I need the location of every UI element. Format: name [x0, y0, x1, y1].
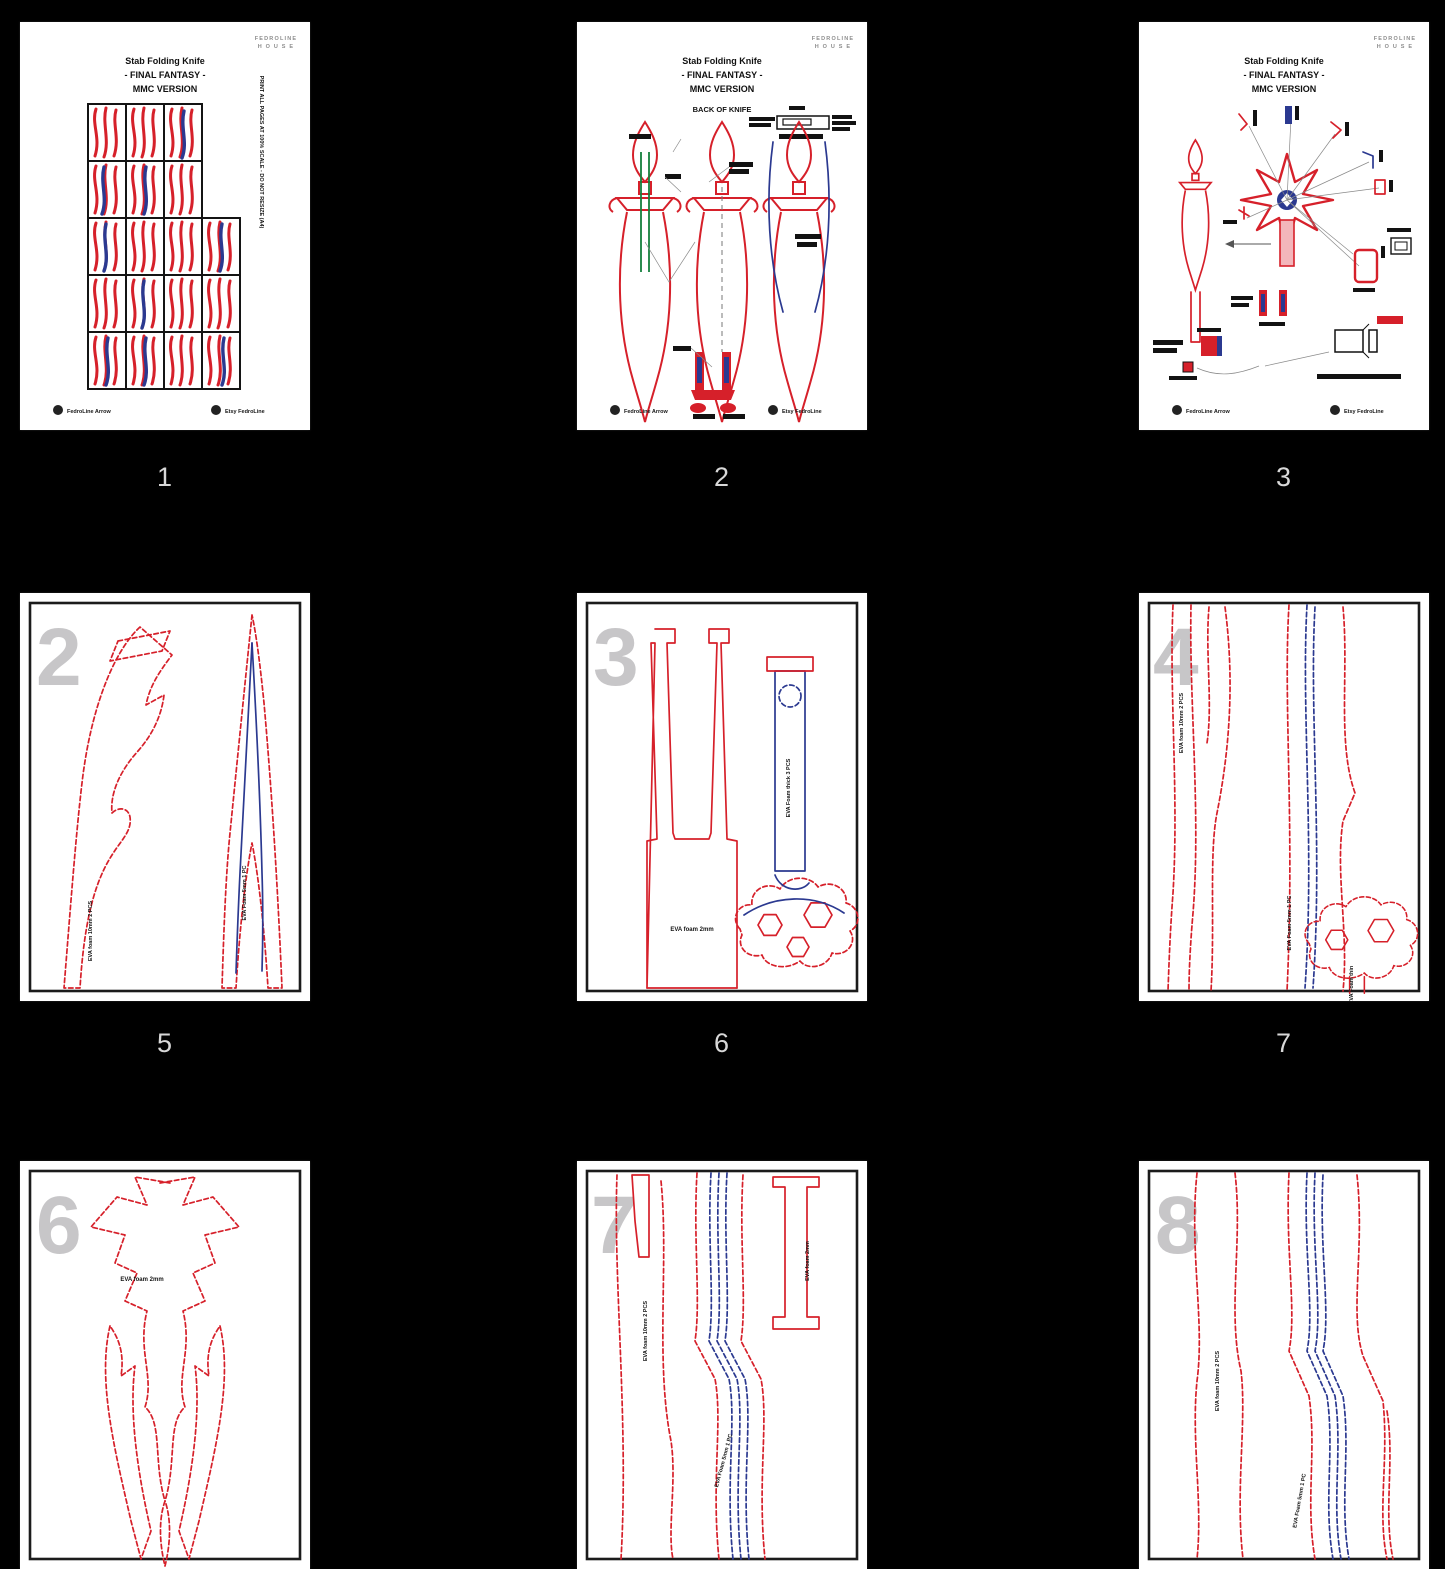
footer-credits: FedroLine Arrow Etsy FedroLine [53, 405, 265, 415]
sheet-2-graphic: 2 EVA foam 10mm 2 PCS EVA Foam 5mm 1 PC [20, 593, 310, 1001]
svg-text:Etsy FedroLine: Etsy FedroLine [782, 409, 822, 415]
footer-credits: FedroLine Arrow Etsy FedroLine [610, 405, 822, 415]
material-label: EVA Foam thin [1349, 965, 1355, 1001]
pattern-piece-handle: EVA foam 2mm [647, 629, 737, 988]
pattern-piece-guard [1305, 897, 1418, 993]
svg-text:Stab Folding Knife: Stab Folding Knife [125, 56, 205, 66]
pattern-piece-ornament: EVA foam 2mm [91, 1177, 239, 1566]
svg-text:EVA foam 2mm: EVA foam 2mm [120, 1277, 163, 1283]
brand-logo-line2: H O U S E [258, 44, 294, 50]
page-number-7[interactable]: 7 [1139, 1028, 1429, 1059]
pattern-tile-grid [88, 104, 240, 389]
svg-text:EVA Foam 5mm 1 PC: EVA Foam 5mm 1 PC [1287, 895, 1293, 950]
page-thumbnail-5[interactable]: 2 EVA foam 10mm 2 PCS EVA Foam 5mm 1 PC [20, 593, 310, 1001]
svg-text:MMC VERSION: MMC VERSION [690, 84, 755, 94]
svg-text:MMC VERSION: MMC VERSION [133, 84, 198, 94]
pattern-piece-blade: EVA Foam 5mm 1 PC [222, 615, 282, 988]
knife-view-left [610, 122, 681, 422]
clamp-assembly [690, 352, 736, 413]
assembled-knife [1180, 140, 1211, 342]
brand-logo-line2: H O U S E [815, 44, 851, 50]
page-3-graphic: FEDROLINE H O U S E Stab Folding Knife -… [1139, 22, 1429, 430]
pattern-blade-bundle: EVA Foam 5mm 1 PC [695, 1173, 765, 1559]
pattern-piece-core: EVA Foam thick 3 PCS [767, 657, 813, 871]
sheet-6-graphic: 6 EVA foam 2mm [20, 1161, 310, 1569]
exploded-guard [1241, 154, 1333, 266]
pattern-piece-guard [736, 878, 858, 966]
svg-text:EVA foam 10mm 2 PCS: EVA foam 10mm 2 PCS [643, 1301, 649, 1362]
knife-view-right [764, 122, 835, 422]
page-number-2[interactable]: 2 [577, 462, 867, 493]
page-thumbnail-7[interactable]: 4 EVA foam 10mm 2 PCS EVA Foam 5mm 1 PC … [1139, 593, 1429, 1001]
page-number-5[interactable]: 5 [20, 1028, 310, 1059]
sheet-number: 8 [1155, 1180, 1201, 1271]
svg-text:MMC VERSION: MMC VERSION [1252, 84, 1317, 94]
footer-left-text: FedroLine Arrow [67, 409, 112, 415]
brand-logo-line1: FEDROLINE [812, 36, 855, 42]
svg-text:Stab Folding Knife: Stab Folding Knife [682, 56, 762, 66]
page-title: Stab Folding Knife - FINAL FANTASY - MMC… [125, 56, 206, 94]
svg-text:FedroLine Arrow: FedroLine Arrow [624, 409, 669, 415]
sheet-number: 2 [36, 612, 82, 703]
pattern-ibeam: EVA foam 2mm [773, 1177, 819, 1329]
page-number-3[interactable]: 3 [1139, 462, 1429, 493]
svg-text:EVA Foam thick 3 PCS: EVA Foam thick 3 PCS [786, 758, 792, 817]
page-number-6[interactable]: 6 [577, 1028, 867, 1059]
page-thumbnail-10[interactable]: 7 EVA foam 10mm 2 PCS EVA Foam 5mm 1 PC … [577, 1161, 867, 1569]
brand-logo-line1: FEDROLINE [255, 36, 298, 42]
svg-text:EVA Foam 5mm 1 PC: EVA Foam 5mm 1 PC [1292, 1473, 1307, 1528]
svg-text:- FINAL FANTASY -: - FINAL FANTASY - [682, 70, 763, 80]
page-thumbnail-6[interactable]: 3 EVA foam 2mm EVA Foam thick 3 PCS [577, 593, 867, 1001]
thickness-legend [749, 106, 856, 139]
page-subtitle: BACK OF KNIFE [693, 105, 752, 114]
sheet-number: 7 [591, 1180, 637, 1271]
svg-text:Stab Folding Knife: Stab Folding Knife [1244, 56, 1324, 66]
brand-logo-line1: FEDROLINE [1374, 36, 1417, 42]
svg-text:- FINAL FANTASY -: - FINAL FANTASY - [125, 70, 206, 80]
sheet-number: 6 [36, 1180, 82, 1271]
svg-text:EVA foam 2mm: EVA foam 2mm [670, 927, 713, 933]
page-title: Stab Folding Knife - FINAL FANTASY - MMC… [1244, 56, 1325, 94]
page-number-1[interactable]: 1 [20, 462, 310, 493]
hardware-detail-left [1153, 328, 1259, 380]
page-2-graphic: FEDROLINE H O U S E Stab Folding Knife -… [577, 22, 867, 430]
pattern-blade-bundle: EVA Foam 5mm 1 PC [1288, 1173, 1393, 1559]
brand-logo-line2: H O U S E [1377, 44, 1413, 50]
page-title: Stab Folding Knife - FINAL FANTASY - MMC… [682, 56, 763, 114]
sheet-8-graphic: 8 EVA foam 10mm 2 PCS EVA Foam 5mm 1 PC [1139, 1161, 1429, 1569]
svg-text:EVA foam 2mm: EVA foam 2mm [805, 1241, 811, 1281]
hardware-detail-right [1265, 316, 1403, 379]
svg-text:EVA Foam 5mm 1 PC: EVA Foam 5mm 1 PC [242, 865, 248, 920]
svg-text:Etsy FedroLine: Etsy FedroLine [1344, 409, 1384, 415]
print-instruction-note: PRINT ALL PAGES AT 100% SCALE - DO NOT R… [258, 76, 264, 229]
page-thumbnail-9[interactable]: 6 EVA foam 2mm [20, 1161, 310, 1569]
svg-text:- FINAL FANTASY -: - FINAL FANTASY - [1244, 70, 1325, 80]
sheet-4-graphic: 4 EVA foam 10mm 2 PCS EVA Foam 5mm 1 PC … [1139, 593, 1429, 1001]
page-1-graphic: FEDROLINE H O U S E Stab Folding Knife -… [20, 22, 310, 430]
pattern-strip-left: EVA foam 10mm 2 PCS [1195, 1173, 1243, 1559]
explode-arrow [1225, 240, 1271, 248]
sheet-7-graphic: 7 EVA foam 10mm 2 PCS EVA Foam 5mm 1 PC … [577, 1161, 867, 1569]
svg-text:EVA foam 10mm 2 PCS: EVA foam 10mm 2 PCS [88, 901, 94, 962]
svg-text:EVA foam 10mm 2 PCS: EVA foam 10mm 2 PCS [1179, 693, 1185, 754]
guard-connector [775, 875, 809, 889]
page-thumbnail-3[interactable]: FEDROLINE H O U S E Stab Folding Knife -… [1139, 22, 1429, 430]
svg-text:FedroLine Arrow: FedroLine Arrow [1186, 409, 1231, 415]
pivot-parts [1231, 290, 1287, 326]
footer-credits: FedroLine Arrow Etsy FedroLine [1172, 405, 1384, 415]
page-thumbnail-2[interactable]: FEDROLINE H O U S E Stab Folding Knife -… [577, 22, 867, 430]
sheet-3-graphic: 3 EVA foam 2mm EVA Foam thick 3 PCS [577, 593, 867, 1001]
page-thumbnail-11[interactable]: 8 EVA foam 10mm 2 PCS EVA Foam 5mm 1 PC [1139, 1161, 1429, 1569]
footer-right-text: Etsy FedroLine [225, 409, 265, 415]
thumbnail-gallery: { "canvas": { "background": "#000000" },… [0, 0, 1445, 1446]
sheet-number: 3 [593, 612, 639, 703]
page-thumbnail-1[interactable]: FEDROLINE H O U S E Stab Folding Knife -… [20, 22, 310, 430]
svg-text:EVA foam 10mm 2 PCS: EVA foam 10mm 2 PCS [1215, 1351, 1221, 1412]
